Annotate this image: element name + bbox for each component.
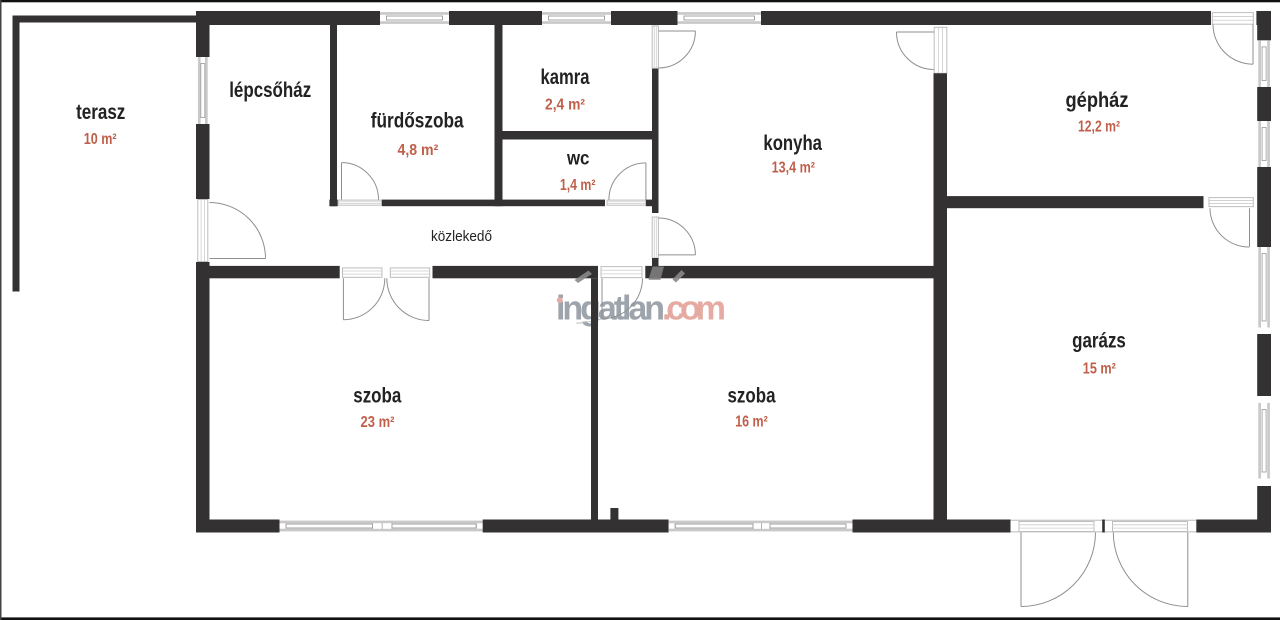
svg-text:1,4 m²: 1,4 m² [560, 177, 596, 194]
svg-text:2,4 m²: 2,4 m² [545, 97, 585, 114]
svg-text:kamra: kamra [541, 65, 591, 89]
svg-text:szoba: szoba [353, 384, 402, 408]
svg-text:terasz: terasz [76, 100, 125, 124]
svg-text:fürdőszoba: fürdőszoba [371, 108, 465, 132]
svg-text:10 m²: 10 m² [84, 131, 117, 148]
svg-text:gépház: gépház [1066, 88, 1129, 112]
svg-text:közlekedő: közlekedő [431, 228, 492, 245]
svg-text:23 m²: 23 m² [361, 414, 395, 431]
svg-text:konyha: konyha [763, 131, 822, 155]
svg-text:4,8 m²: 4,8 m² [398, 142, 439, 159]
svg-text:16 m²: 16 m² [735, 414, 768, 431]
svg-text:15 m²: 15 m² [1083, 360, 1116, 377]
svg-text:12,2 m²: 12,2 m² [1078, 119, 1120, 136]
svg-text:garázs: garázs [1072, 329, 1126, 353]
svg-text:wc: wc [566, 149, 590, 170]
svg-text:lépcsőház: lépcsőház [229, 78, 311, 102]
svg-text:13,4 m²: 13,4 m² [772, 160, 815, 177]
svg-text:szoba: szoba [728, 384, 777, 408]
svg-text:ingatlan.com: ingatlan.com [556, 290, 725, 328]
